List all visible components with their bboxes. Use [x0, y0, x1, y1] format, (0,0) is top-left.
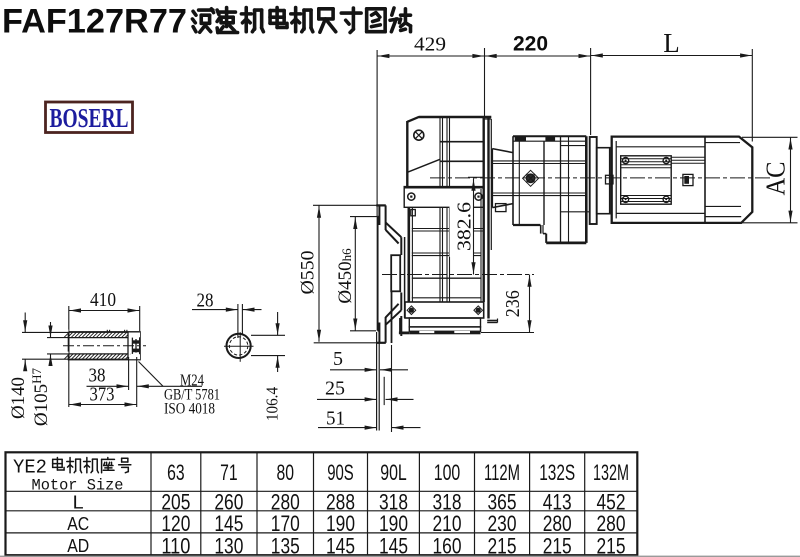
svg-text:51: 51	[326, 408, 345, 430]
svg-text:5: 5	[333, 348, 343, 370]
svg-text:410: 410	[90, 289, 116, 311]
svg-text:L: L	[663, 28, 680, 58]
svg-text:28: 28	[197, 290, 214, 312]
svg-text:220: 220	[513, 33, 548, 56]
svg-text:135: 135	[271, 533, 300, 557]
svg-text:AD: AD	[67, 536, 89, 556]
svg-text:130: 130	[214, 533, 243, 557]
svg-text:BOSERL: BOSERL	[50, 103, 129, 133]
svg-text:90S: 90S	[327, 460, 354, 485]
svg-text:AC: AC	[67, 514, 89, 534]
svg-text:236: 236	[502, 290, 524, 317]
svg-text:145: 145	[326, 533, 355, 557]
svg-text:100: 100	[434, 460, 461, 485]
svg-text:112M: 112M	[484, 460, 520, 485]
svg-text:90L: 90L	[380, 460, 407, 485]
svg-text:Ø140: Ø140	[8, 377, 29, 419]
svg-text:145: 145	[379, 533, 408, 557]
svg-text:FAF127R77: FAF127R77	[2, 3, 187, 41]
svg-text:110: 110	[161, 533, 190, 557]
svg-text:132S: 132S	[539, 460, 575, 485]
svg-text:L: L	[73, 492, 84, 512]
svg-text:63: 63	[167, 460, 185, 485]
svg-text:80: 80	[277, 460, 295, 485]
svg-text:106.4: 106.4	[263, 387, 282, 421]
svg-text:Ø450h6: Ø450h6	[335, 248, 356, 304]
svg-text:132M: 132M	[593, 460, 629, 485]
svg-text:71: 71	[220, 460, 238, 485]
svg-text:382.6: 382.6	[454, 202, 476, 251]
svg-text:373: 373	[90, 384, 115, 406]
svg-text:25: 25	[325, 378, 345, 400]
svg-text:YE2: YE2	[13, 457, 47, 479]
svg-text:AC: AC	[761, 162, 791, 196]
svg-text:215: 215	[488, 533, 517, 557]
svg-text:Ø550: Ø550	[298, 251, 319, 295]
svg-text:215: 215	[597, 533, 626, 557]
svg-text:ISO 4018: ISO 4018	[164, 401, 215, 418]
svg-text:215: 215	[543, 533, 572, 557]
svg-text:429: 429	[414, 34, 446, 56]
svg-text:160: 160	[433, 533, 462, 557]
